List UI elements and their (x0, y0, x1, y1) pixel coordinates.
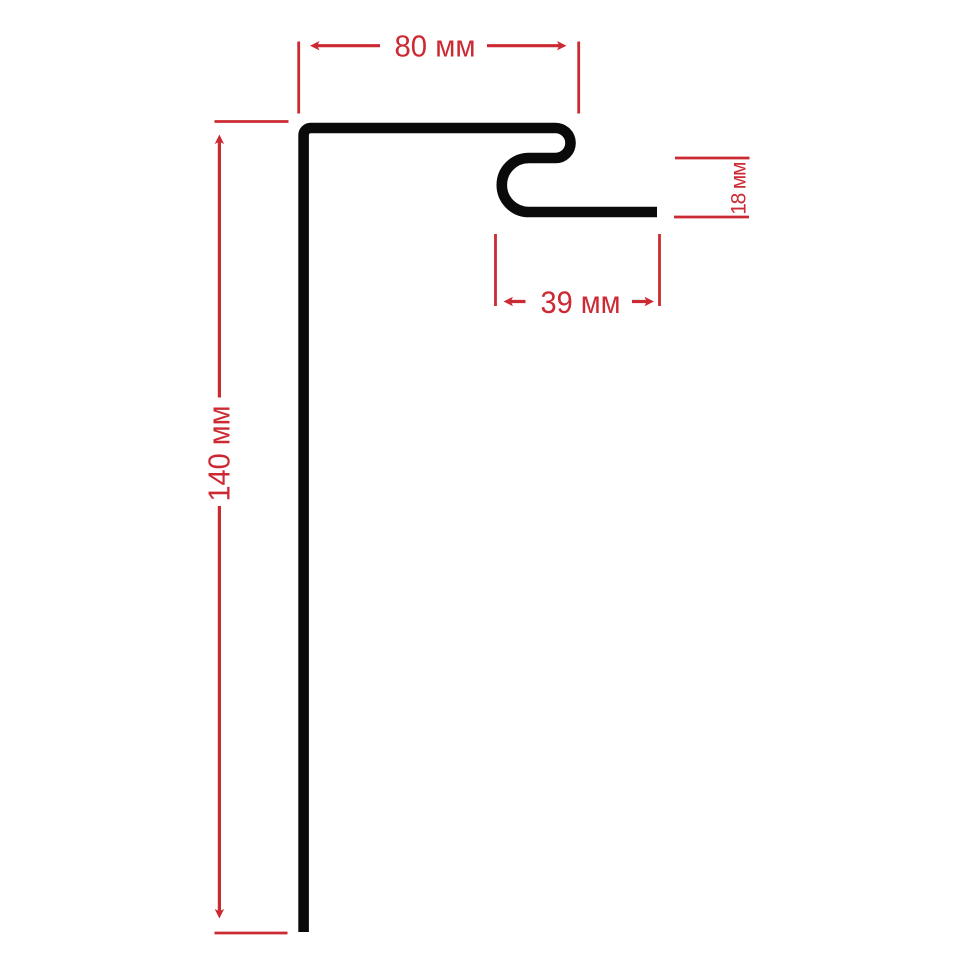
svg-text:18 мм: 18 мм (728, 162, 751, 215)
svg-text:140 мм: 140 мм (203, 405, 237, 501)
svg-text:80 мм: 80 мм (395, 29, 476, 64)
svg-text:39 мм: 39 мм (541, 284, 621, 320)
